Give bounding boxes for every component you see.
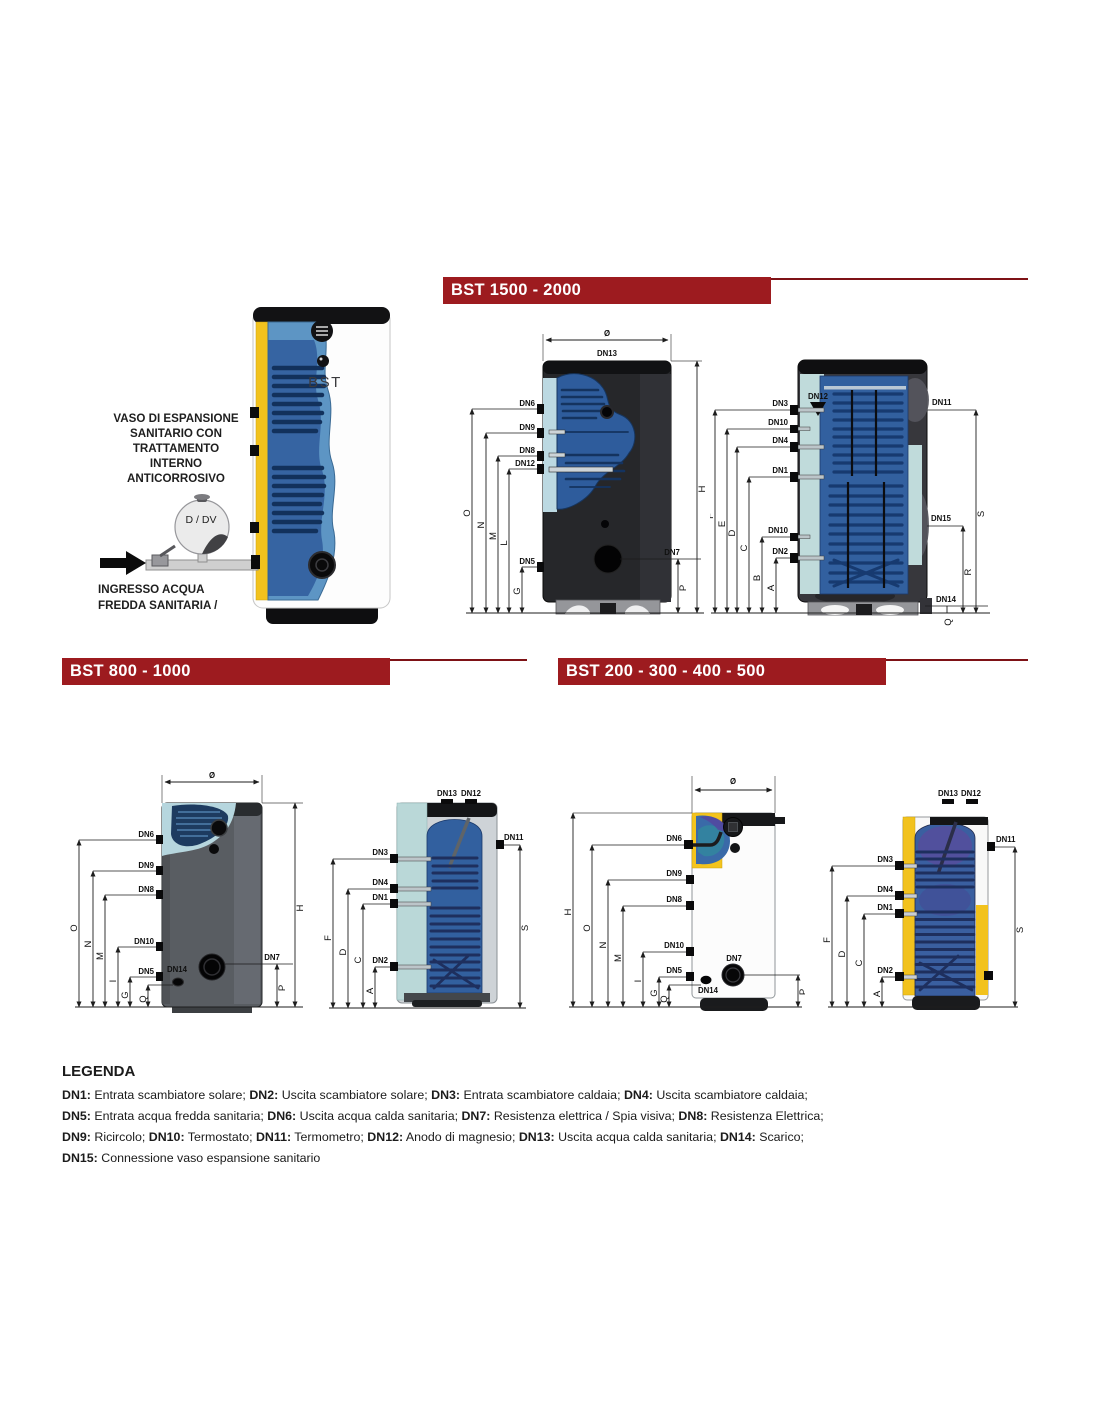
- header-rule: [886, 659, 1028, 661]
- dim-label-n: N: [476, 521, 487, 528]
- flange-icon: [309, 552, 335, 578]
- dim-label-n: N: [83, 940, 94, 947]
- port-label-dn14: DN14: [936, 595, 957, 604]
- flow-arrow-icon: [100, 558, 126, 568]
- section-title: BST 1500 - 2000: [451, 281, 581, 299]
- inlet-note-line: INGRESSO ACQUA: [98, 583, 205, 596]
- port-label-dn10: DN10: [768, 526, 789, 535]
- port-nub: [250, 522, 259, 533]
- inlet-note-line: FREDDA SANITARIA /: [98, 599, 218, 612]
- expansion-note-line: TRATTAMENTO: [133, 442, 219, 455]
- legend-text: Uscita acqua calda sanitaria;: [555, 1130, 720, 1144]
- port-label-dn6: DN6: [138, 830, 154, 839]
- section-header-bst-200-500: BST 200 - 300 - 400 - 500: [558, 658, 886, 685]
- port-label-dn4: DN4: [877, 885, 893, 894]
- diagram-bst-200-500-front: Ø DN6 DN9 DN8 DN10 DN5 DN14 DN7 H O N M …: [560, 765, 805, 1020]
- port-label-dn3: DN3: [772, 399, 788, 408]
- port-label-dn13: DN13: [437, 789, 458, 798]
- legend-text: Scarico;: [756, 1130, 804, 1144]
- legend-key: DN2:: [249, 1088, 278, 1102]
- port-label-dn9: DN9: [138, 861, 154, 870]
- legend-text: Ricircolo;: [91, 1130, 149, 1144]
- tank-graphic: [895, 799, 995, 1010]
- port-label-dn8: DN8: [666, 895, 682, 904]
- port-label-dn2: DN2: [772, 547, 788, 556]
- dim-label-i: I: [108, 980, 119, 983]
- port-label-dn12: DN12: [461, 789, 482, 798]
- port-label-dn10: DN10: [664, 941, 685, 950]
- dim-label-m: M: [488, 532, 499, 540]
- dim-label-h: H: [697, 485, 708, 492]
- legend-text: Entrata scambiatore caldaia;: [460, 1088, 624, 1102]
- legend-key: DN15:: [62, 1151, 98, 1165]
- expansion-note-line: ANTICORROSIVO: [127, 472, 225, 485]
- port-nubs: [790, 405, 798, 563]
- port-nub: [250, 445, 259, 456]
- legend-key: DN13:: [519, 1130, 555, 1144]
- port-label-dn10: DN10: [134, 937, 155, 946]
- dim-label-b: B: [752, 575, 763, 581]
- port-label-dn2: DN2: [877, 966, 893, 975]
- tank-graphic: [390, 799, 504, 1007]
- diagram-bst-800-1000-front: Ø DN6 DN9 DN8 DN10 DN5 DN14 DN7 O N M I …: [60, 765, 325, 1020]
- dim-label-diameter: Ø: [209, 771, 215, 780]
- legend: LEGENDA DN1: Entrata scambiatore solare;…: [62, 1063, 1052, 1171]
- dim-label-l: L: [499, 540, 510, 545]
- section-header-bst-800-1000: BST 800 - 1000: [62, 658, 390, 685]
- expansion-note-line: VASO DI ESPANSIONE: [113, 412, 238, 425]
- dim-label-s: S: [520, 925, 531, 931]
- dim-label-a: A: [872, 990, 883, 997]
- anode-rod: [549, 467, 613, 472]
- port-label-dn12: DN12: [808, 392, 829, 401]
- section-title: BST 200 - 300 - 400 - 500: [566, 662, 765, 680]
- port-label-dn6: DN6: [519, 399, 535, 408]
- port-label-dn1: DN1: [372, 893, 388, 902]
- dim-label-c: C: [854, 959, 865, 966]
- dim-label-n: N: [598, 941, 609, 948]
- dim-label-q: Q: [943, 618, 954, 625]
- port-label-dn11: DN11: [504, 833, 524, 842]
- dim-label-diameter: Ø: [604, 329, 610, 338]
- legend-text: Uscita acqua calda sanitaria;: [296, 1109, 461, 1123]
- dim-label-c: C: [739, 544, 750, 551]
- drain-port: [701, 976, 712, 984]
- legend-text: Uscita scambiatore solare;: [278, 1088, 431, 1102]
- product-illustration: VASO DI ESPANSIONE SANITARIO CON TRATTAM…: [90, 300, 400, 635]
- port-label-dn8: DN8: [519, 446, 535, 455]
- heater-flange: [199, 954, 225, 980]
- dim-label-g: G: [512, 587, 523, 594]
- port-nub: [251, 555, 260, 569]
- port-label-dn5: DN5: [138, 967, 154, 976]
- port-label-dn1: DN1: [877, 903, 893, 912]
- port-label-dn6: DN6: [666, 834, 682, 843]
- diagram-bst-800-1000-section: DN13 DN12 DN3 DN4 DN1 DN2 DN11 F D C A S: [322, 782, 548, 1020]
- legend-line-2: DN5: Entrata acqua fredda sanitaria; DN6…: [62, 1108, 1052, 1125]
- port-label-dn3: DN3: [877, 855, 893, 864]
- port-label-dn3: DN3: [372, 848, 388, 857]
- header-rule: [771, 278, 1028, 280]
- legend-line-4: DN15: Connessione vaso espansione sanita…: [62, 1150, 1052, 1167]
- legend-key: DN5:: [62, 1109, 91, 1123]
- legend-key: DN8:: [678, 1109, 707, 1123]
- vessel-label: D / DV: [186, 514, 217, 526]
- expansion-note-line: SANITARIO CON: [130, 427, 222, 440]
- dim-label-p: P: [678, 585, 689, 591]
- legend-key: DN11:: [256, 1130, 291, 1144]
- legend-key: DN4:: [624, 1088, 653, 1102]
- datasheet-page: BST 1500 - 2000 BST 800 - 1000 BST 200 -…: [0, 0, 1100, 1422]
- legend-key: DN3:: [431, 1088, 460, 1102]
- legend-text: Uscita scambiatore caldaia;: [653, 1088, 808, 1102]
- legend-key: DN14:: [720, 1130, 756, 1144]
- expansion-note-line: INTERNO: [150, 457, 202, 470]
- legend-text: Entrata acqua fredda sanitaria;: [91, 1109, 267, 1123]
- port-label-dn9: DN9: [519, 423, 535, 432]
- port-label-dn13: DN13: [597, 349, 618, 358]
- dim-label-d: D: [338, 948, 349, 955]
- dim-label-a: A: [766, 584, 777, 591]
- port-label-dn5: DN5: [666, 966, 682, 975]
- legend-text: Anodo di magnesio;: [403, 1130, 519, 1144]
- dim-label-d: D: [727, 529, 738, 536]
- legend-title: LEGENDA: [62, 1063, 1052, 1080]
- dim-label-e: E: [717, 521, 728, 527]
- dim-label-m: M: [95, 952, 106, 960]
- legend-text: Termometro;: [291, 1130, 367, 1144]
- legend-text: Resistenza elettrica / Spia visiva;: [490, 1109, 678, 1123]
- dim-label-d: D: [837, 950, 848, 957]
- dim-label-o: O: [69, 924, 80, 931]
- dim-label-i: I: [633, 980, 644, 983]
- legend-key: DN1:: [62, 1088, 91, 1102]
- port-nub: [250, 407, 259, 418]
- port-label-dn10: DN10: [768, 418, 789, 427]
- port-label-dn14: DN14: [698, 986, 719, 995]
- dim-label-o: O: [462, 509, 473, 516]
- dim-label-p: P: [798, 989, 805, 995]
- port-label-dn11: DN11: [932, 398, 952, 407]
- heater-flange: [594, 545, 622, 573]
- dim-label-c: C: [353, 956, 364, 963]
- port-label-dn14: DN14: [167, 965, 188, 974]
- dim-label-s: S: [1015, 927, 1026, 933]
- diagram-bst-200-500-section: DN13 DN12 DN3 DN4 DN1 DN2 DN11 F D C A S: [818, 782, 1046, 1020]
- heater-flange: [722, 964, 744, 986]
- legend-key: DN10:: [149, 1130, 185, 1144]
- dim-label-q: Q: [138, 995, 149, 1002]
- port-label-dn13: DN13: [938, 789, 959, 798]
- tank-graphic: [250, 307, 390, 624]
- port-label-dn2: DN2: [372, 956, 388, 965]
- port-label-dn7: DN7: [726, 954, 742, 963]
- dim-label-o: O: [582, 924, 593, 931]
- dim-label-diameter: Ø: [730, 777, 736, 786]
- tank-graphic: [537, 361, 671, 614]
- legend-text: Termostato;: [185, 1130, 256, 1144]
- legend-key: DN9:: [62, 1130, 91, 1144]
- dim-label-q: Q: [659, 995, 670, 1002]
- section-header-bst-1500-2000: BST 1500 - 2000: [443, 277, 771, 304]
- legend-text: Entrata scambiatore solare;: [91, 1088, 249, 1102]
- legend-key: DN7:: [461, 1109, 490, 1123]
- port-label-dn1: DN1: [772, 466, 788, 475]
- section-title: BST 800 - 1000: [70, 662, 191, 680]
- diagram-bst-1500-2000-section: DN12 DN3 DN10 DN4 DN1 DN10 DN2 DN11 DN15…: [710, 325, 1000, 630]
- header-rule: [390, 659, 527, 661]
- port-label-dn5: DN5: [519, 557, 535, 566]
- tank-graphic: [156, 803, 262, 1013]
- port-label-dn8: DN8: [138, 885, 154, 894]
- port-label-dn15: DN15: [931, 514, 952, 523]
- port-label-dn7: DN7: [664, 548, 680, 557]
- drain-port: [173, 978, 184, 986]
- dim-label-f: F: [710, 513, 716, 519]
- dim-label-s: S: [976, 511, 987, 517]
- product-label: BST: [308, 374, 342, 391]
- expansion-vessel-graphic: [100, 494, 260, 575]
- port-label-dn7: DN7: [264, 953, 280, 962]
- dim-label-h: H: [563, 908, 574, 915]
- dim-label-f: F: [323, 935, 334, 941]
- dim-label-a: A: [365, 987, 376, 994]
- dim-label-g: G: [120, 991, 131, 998]
- port-label-dn12: DN12: [961, 789, 982, 798]
- dim-label-m: M: [613, 954, 624, 962]
- valve-icon: [152, 555, 168, 566]
- port-label-dn11: DN11: [996, 835, 1016, 844]
- legend-key: DN6:: [267, 1109, 296, 1123]
- dim-label-p: P: [277, 985, 288, 991]
- port-label-dn4: DN4: [372, 878, 388, 887]
- legend-text: Resistenza Elettrica;: [707, 1109, 823, 1123]
- sensor-dot-icon: [317, 355, 329, 367]
- port-label-dn4: DN4: [772, 436, 788, 445]
- legend-text: Connessione vaso espansione sanitario: [98, 1151, 321, 1165]
- dim-label-h: H: [295, 904, 306, 911]
- legend-key: DN12:: [367, 1130, 403, 1144]
- legend-line-1: DN1: Entrata scambiatore solare; DN2: Us…: [62, 1087, 1052, 1104]
- dim-label-r: R: [963, 568, 974, 575]
- port-label-dn9: DN9: [666, 869, 682, 878]
- legend-line-3: DN9: Ricircolo; DN10: Termostato; DN11: …: [62, 1129, 1052, 1146]
- port-label-dn12: DN12: [515, 459, 536, 468]
- tank-graphic: [684, 813, 785, 1011]
- diagram-bst-1500-2000-front: Ø DN13 DN6 DN9 DN8 DN12 DN5 DN7 O N M L …: [455, 325, 710, 625]
- dim-label-f: F: [822, 937, 833, 943]
